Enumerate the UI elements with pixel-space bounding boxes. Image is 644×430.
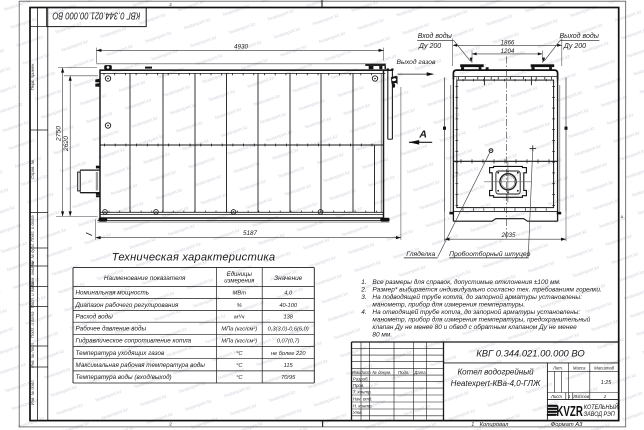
svg-text:40-100: 40-100	[279, 303, 298, 309]
svg-text:Номинальная мощность: Номинальная мощность	[76, 290, 150, 297]
svg-text:°С: °С	[236, 351, 243, 357]
svg-text:№ докум.: № докум.	[372, 370, 391, 375]
svg-text:Масштаб: Масштаб	[594, 365, 615, 370]
svg-text:Т. контр.: Т. контр.	[353, 390, 372, 395]
svg-text:Инв. № подл.: Инв. № подл.	[30, 342, 35, 368]
svg-text:2750: 2750	[55, 126, 62, 142]
svg-text:На подводящей трубе котла, до: На подводящей трубе котла, до запорной а…	[372, 293, 582, 301]
svg-text:2.: 2.	[360, 287, 367, 294]
svg-text:клапан Ду не менее 80 и обвод: клапан Ду не менее 80 и обвод с обратным…	[372, 323, 577, 331]
svg-text:A: A	[620, 214, 623, 219]
svg-text:1204: 1204	[501, 48, 515, 55]
svg-text:Все размеры для справок, допус: Все размеры для справок, допустимые откл…	[372, 278, 561, 286]
svg-text:°С: °С	[236, 363, 243, 369]
svg-text:%: %	[237, 303, 242, 309]
svg-text:Лист: Лист	[359, 370, 371, 375]
svg-text:Ду 200: Ду 200	[563, 43, 586, 50]
svg-text:Лит.: Лит.	[552, 365, 563, 370]
svg-text:Диапазон рабочего регулировани: Диапазон рабочего регулирования	[75, 301, 179, 309]
svg-text:2620: 2620	[63, 136, 70, 152]
svg-text:Перв. примен.: Перв. примен.	[30, 63, 35, 91]
svg-text:Подп. и дата: Подп. и дата	[30, 281, 35, 308]
svg-text:Гидравлическое сопротивление к: Гидравлическое сопротивление котла	[76, 337, 192, 345]
svg-text:м³/ч: м³/ч	[234, 315, 244, 321]
svg-text:Гляделка: Гляделка	[406, 250, 435, 258]
svg-text:манометр, прибор для измерения: манометр, прибор для измерения температу…	[372, 301, 525, 309]
svg-text:Лист: Лист	[550, 394, 562, 399]
svg-text:Масса: Масса	[573, 365, 586, 370]
svg-text:80 мм.: 80 мм.	[372, 332, 392, 339]
svg-text:0,07(0,7): 0,07(0,7)	[277, 339, 300, 345]
svg-text:Значение: Значение	[274, 275, 302, 282]
svg-text:Единицы: Единицы	[227, 272, 253, 278]
svg-text:Утв.: Утв.	[353, 410, 363, 415]
svg-text:Н. контр.: Н. контр.	[353, 404, 373, 409]
svg-text:°С: °С	[236, 375, 243, 381]
svg-text:2035: 2035	[500, 232, 516, 239]
svg-text:измерения: измерения	[224, 279, 255, 285]
svg-text:Пров.: Пров.	[353, 383, 365, 388]
svg-text:1866: 1866	[501, 39, 515, 46]
svg-text:А: А	[418, 128, 427, 140]
svg-text:не более 220: не более 220	[271, 351, 307, 357]
svg-text:Рабочее давление воды: Рабочее давление воды	[76, 325, 147, 333]
svg-text:Температура уходящих газов: Температура уходящих газов	[76, 349, 165, 357]
svg-text:70/95: 70/95	[281, 375, 296, 381]
svg-text:Инв. № подл.: Инв. № подл.	[30, 379, 35, 405]
svg-text:1: 1	[471, 422, 474, 428]
svg-text:Heatexpert-КВа-4,0-ГЛЖ: Heatexpert-КВа-4,0-ГЛЖ	[451, 379, 541, 388]
svg-text:KVZR: KVZR	[556, 404, 583, 420]
svg-text:КВГ 0.344.021.00.000 ВО: КВГ 0.344.021.00.000 ВО	[476, 347, 585, 358]
svg-text:Вход воды: Вход воды	[418, 32, 453, 40]
svg-text:Подп. и дата: Подп. и дата	[30, 215, 35, 242]
svg-text:На отводящей трубе котла, до з: На отводящей трубе котла, до запорной ар…	[372, 308, 580, 316]
svg-text:Расход воды: Расход воды	[76, 313, 114, 321]
svg-text:Формат А3: Формат А3	[551, 422, 583, 428]
svg-text:МПа (кгс/см²): МПа (кгс/см²)	[221, 339, 257, 345]
svg-text:115: 115	[284, 363, 294, 369]
svg-text:Разраб.: Разраб.	[353, 376, 369, 381]
svg-text:Ду 200: Ду 200	[418, 43, 441, 50]
svg-text:1.: 1.	[361, 279, 367, 286]
svg-text:Выход воды: Выход воды	[560, 32, 600, 40]
svg-text:Наименование показателя: Наименование показателя	[104, 275, 186, 282]
svg-text:МПа (кгс/см²): МПа (кгс/см²)	[221, 327, 257, 333]
svg-text:Размер* выбирается индивидуаль: Размер* выбирается индивидуально согласн…	[372, 286, 602, 294]
svg-text:Копировал: Копировал	[480, 422, 510, 428]
svg-text:Температура воды (вход/выход): Температура воды (вход/выход)	[76, 373, 172, 381]
svg-text:Листов: Листов	[572, 394, 589, 399]
svg-text:2: 2	[169, 422, 172, 427]
svg-text:1:25: 1:25	[601, 380, 612, 386]
svg-text:Выход газов: Выход газов	[397, 58, 436, 66]
svg-text:2: 2	[169, 2, 172, 7]
svg-text:МВт: МВт	[233, 291, 247, 297]
svg-text:Подп. и дата: Подп. и дата	[30, 311, 35, 338]
svg-text:4,0: 4,0	[284, 291, 293, 297]
svg-text:Максимальная рабочая температу: Максимальная рабочая температура воды	[76, 361, 206, 369]
svg-text:Пробоотборный штуцер: Пробоотборный штуцер	[449, 250, 531, 258]
svg-text:4930: 4930	[234, 43, 249, 50]
svg-text:0,3(3,0)-0,6(6,0): 0,3(3,0)-0,6(6,0)	[268, 327, 309, 333]
svg-text:Котел водогрейный: Котел водогрейный	[457, 368, 534, 377]
svg-text:5187: 5187	[243, 230, 258, 237]
svg-text:Техническая характеристика: Техническая характеристика	[112, 251, 276, 263]
svg-text:ЗАВОД РЭП: ЗАВОД РЭП	[584, 411, 616, 418]
svg-text:138: 138	[283, 315, 293, 321]
svg-text:Дата: Дата	[413, 370, 426, 375]
svg-text:КВГ 0.344.021.00.000 ВО: КВГ 0.344.021.00.000 ВО	[52, 9, 140, 20]
svg-text:Нач. отд.: Нач. отд.	[353, 397, 373, 402]
svg-text:Справ. №: Справ. №	[30, 160, 35, 179]
svg-text:4.: 4.	[361, 309, 367, 316]
svg-text:манометр, прибор для измерения: манометр, прибор для измерения температу…	[372, 316, 590, 324]
svg-text:3.: 3.	[361, 294, 367, 301]
svg-text:Подп.: Подп.	[398, 370, 409, 375]
